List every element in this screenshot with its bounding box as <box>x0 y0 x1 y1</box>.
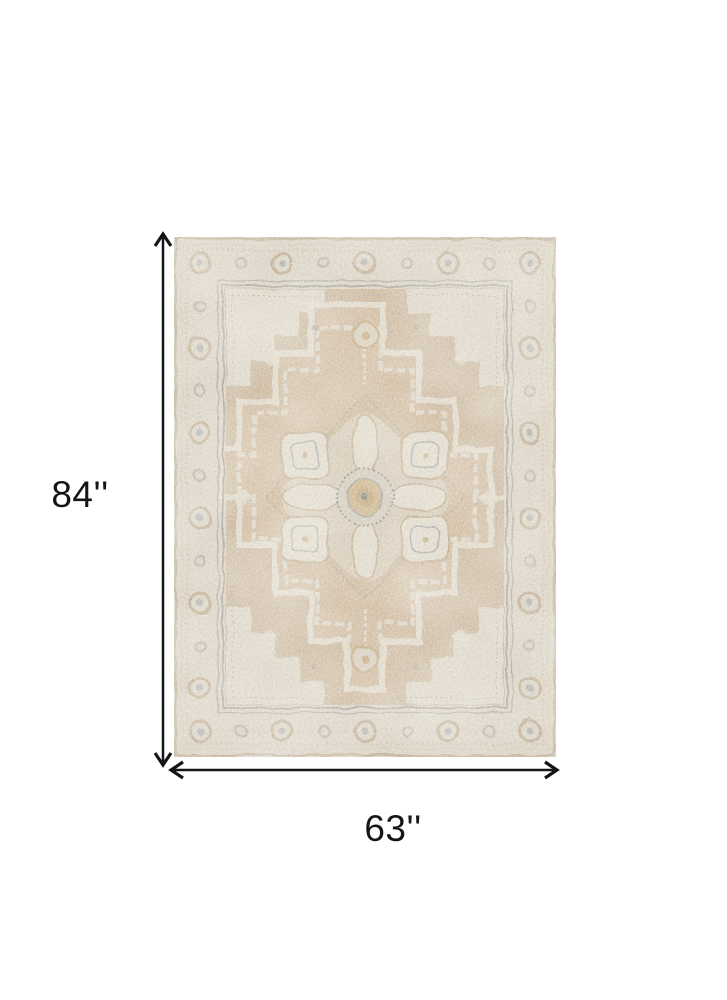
height-dimension-arrow <box>155 234 171 765</box>
rug-product-image <box>174 237 556 757</box>
fabric-grain-dark-overlay <box>174 237 556 757</box>
width-label: 63'' <box>364 808 421 849</box>
width-dimension-arrow <box>171 762 557 778</box>
height-label: 84'' <box>51 474 108 515</box>
diagram-canvas: 84'' 63'' <box>0 0 727 1000</box>
dimension-diagram: 84'' 63'' <box>0 0 727 1000</box>
